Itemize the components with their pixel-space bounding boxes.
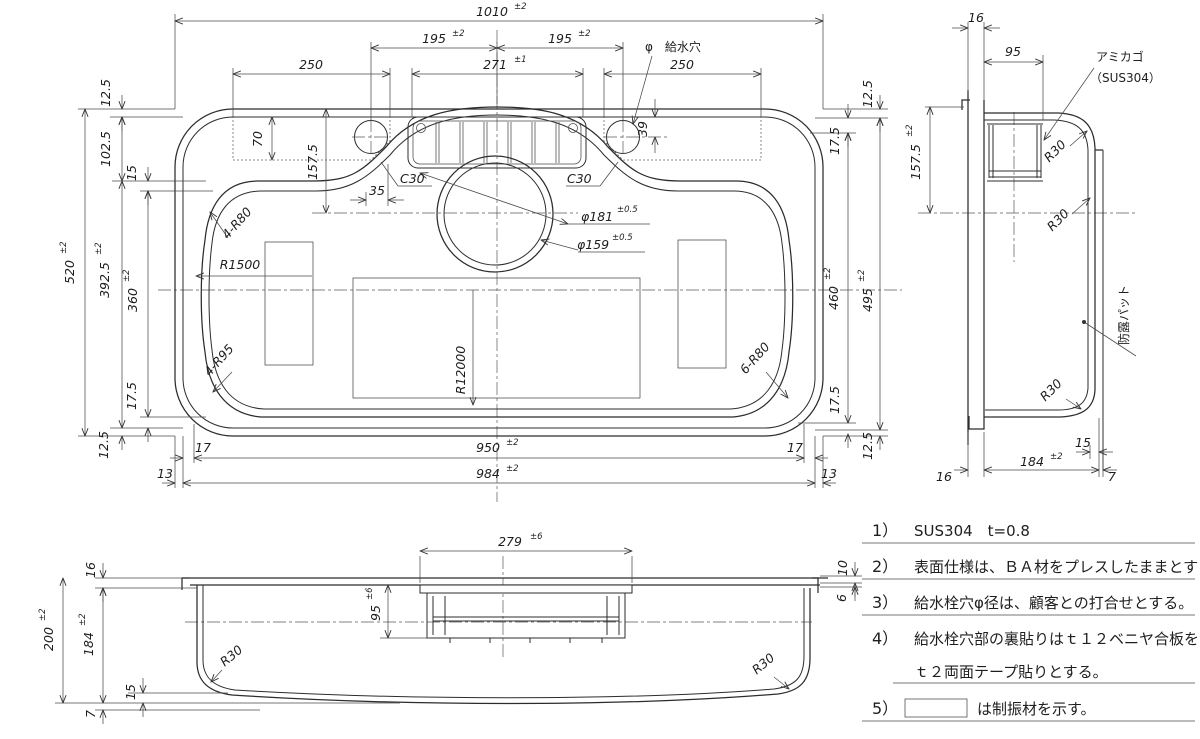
dim-drain-outer-tol: ±0.5: [617, 205, 638, 215]
dim-184-front: 184 ±2: [78, 613, 96, 655]
dim-950-tol: ±2: [506, 438, 519, 448]
damping-pad-right: [678, 240, 726, 368]
dim-15-side: 15: [1075, 435, 1091, 450]
front-basket: [420, 585, 632, 643]
note-1-text: SUS304 t=0.8: [914, 522, 1030, 540]
front-leaders: [211, 670, 789, 689]
svg-text:200: 200: [41, 627, 56, 651]
plan-view: 1010 ±2 195 ±2 195 ±2 φ 給水穴 250 271 ±1 2…: [59, 2, 902, 502]
dim-271: 271: [483, 57, 507, 72]
side-basket: [987, 124, 1043, 181]
dim-17-right: 17: [787, 440, 803, 455]
dim-16-top-side: 16: [968, 10, 984, 25]
dim-17-5-bottom-right: 17.5: [827, 386, 842, 414]
dim-7-front: 7: [83, 710, 98, 718]
svg-text:184: 184: [81, 632, 96, 656]
dim-271-tol: ±1: [514, 55, 527, 65]
svg-text:±2: ±2: [857, 269, 867, 282]
dim-15-front: 15: [123, 684, 138, 700]
engineering-drawing-sink: 1010 ±2 195 ±2 195 ±2 φ 給水穴 250 271 ±1 2…: [0, 0, 1200, 739]
dim-195-right: 195: [548, 31, 572, 46]
label-r1500: R1500: [220, 257, 261, 272]
svg-text:95: 95: [368, 605, 383, 621]
dim-195-left-tol: ±2: [452, 29, 465, 39]
note-4-number: 4）: [872, 629, 898, 648]
dim-984: 984: [476, 466, 500, 481]
label-r30-front-left: R30: [217, 642, 246, 669]
note-3-number: 3）: [872, 593, 898, 612]
drain-circle-inner: [444, 163, 546, 265]
label-c30-right: C30: [567, 171, 592, 186]
note-4-text-line2: ｔ２両面テープ貼りとする。: [914, 663, 1108, 681]
side-section-view: 16 95 アミカゴ （SUS304） 157.5 ±2 R30 R30 防露パ…: [905, 10, 1161, 484]
dim-overall-width-tol: ±2: [514, 2, 527, 12]
dim-12-5-top-left: 12.5: [98, 79, 113, 107]
dim-460: 460 ±2: [823, 267, 841, 309]
dim-7-side: 7: [1108, 469, 1116, 484]
svg-text:±2: ±2: [122, 269, 132, 282]
plan-leaders: [196, 56, 788, 405]
dim-184-side: 184: [1020, 454, 1044, 469]
dim-12-5-bottom-right: 12.5: [860, 432, 875, 460]
dim-95-side: 95: [1005, 44, 1021, 59]
dim-184-side-tol: ±2: [1050, 452, 1063, 462]
svg-text:±2: ±2: [905, 124, 915, 137]
svg-text:±2: ±2: [78, 613, 88, 626]
drain-circle-outer: [437, 156, 553, 272]
label-r30-bottom-side: R30: [1037, 376, 1065, 404]
front-profile: [182, 578, 828, 704]
dim-250-left: 250: [299, 57, 323, 72]
note-5-hatch-swatch: [905, 699, 967, 717]
label-basket-material: （SUS304）: [1090, 71, 1161, 85]
dim-157-5-plan: 157.5: [305, 144, 320, 180]
label-faucet-hole: φ 給水穴: [645, 39, 701, 54]
label-r30-front-right: R30: [749, 650, 778, 677]
note-3-text: 給水栓穴φ径は、顧客との打合せとする。: [914, 594, 1193, 612]
dim-70: 70: [250, 131, 265, 147]
svg-text:392.5: 392.5: [97, 262, 112, 298]
dim-279: 279: [498, 534, 522, 549]
dim-195-left: 195: [422, 31, 446, 46]
dim-17-5-top-right: 17.5: [827, 127, 842, 155]
side-dimension-lines: [930, 28, 1117, 470]
svg-text:±6: ±6: [365, 587, 375, 600]
dim-950: 950: [476, 440, 500, 455]
label-basket: アミカゴ: [1096, 49, 1144, 64]
dim-12-5-top-right: 12.5: [860, 80, 875, 108]
dim-drain-inner: φ159: [577, 237, 609, 252]
svg-text:495: 495: [860, 288, 875, 312]
dim-15-left: 15: [124, 165, 139, 181]
note-5-text: は制振材を示す。: [977, 700, 1096, 718]
dim-17-5-bottom-left: 17.5: [124, 382, 139, 410]
dim-984-tol: ±2: [506, 464, 519, 474]
dim-250-right: 250: [670, 57, 694, 72]
svg-text:±2: ±2: [38, 608, 48, 621]
dim-16-bottom-side: 16: [936, 469, 952, 484]
label-6-r80: 6-R80: [737, 339, 773, 377]
dim-16-front: 16: [83, 562, 98, 578]
front-extension-lines: [55, 556, 862, 710]
damping-pad-center: [353, 278, 640, 398]
side-leaders: [1044, 68, 1136, 409]
dim-520: 520 ±2: [59, 241, 77, 283]
label-4-r80: 4-R80: [219, 204, 255, 242]
dim-157-5-side: 157.5 ±2: [905, 124, 923, 179]
dim-279-tol: ±6: [530, 532, 543, 542]
dim-10-front: 10: [835, 560, 850, 576]
note-4-text-line1: 給水栓穴部の裏貼りはｔ１２ベニヤ合板を: [914, 630, 1199, 648]
dim-drain-inner-tol: ±0.5: [612, 233, 633, 243]
label-r12000: R12000: [453, 346, 468, 394]
svg-text:460: 460: [826, 286, 841, 310]
dim-360: 360 ±2: [122, 269, 140, 311]
dim-overall-width: 1010: [476, 4, 508, 19]
damping-strip-right: [604, 117, 761, 160]
note-5-number: 5）: [872, 699, 898, 718]
dim-102-5: 102.5: [98, 131, 113, 167]
notes-block: 1） SUS304 t=0.8 2） 表面仕様は、ＢＡ材をプレスしたままとする。…: [862, 521, 1200, 721]
dim-13-right: 13: [821, 466, 837, 481]
svg-text:157.5: 157.5: [908, 144, 923, 180]
dim-6-front: 6: [834, 594, 849, 602]
label-r30-mid: R30: [1044, 206, 1072, 234]
side-profile: [962, 90, 1103, 470]
svg-text:360: 360: [125, 288, 140, 312]
dim-35: 35: [369, 183, 385, 198]
dim-39: 39: [635, 121, 650, 137]
dim-drain-outer: φ181: [581, 209, 613, 224]
label-r30-top: R30: [1041, 137, 1069, 165]
dim-200: 200 ±2: [38, 608, 56, 650]
damping-pad-left: [265, 242, 313, 365]
label-c30-left: C30: [400, 171, 425, 186]
note-2-number: 2）: [872, 557, 898, 576]
front-section-view: 279 ±6 16 200 ±2 184 ±2 95 ±6 R30 R30 15…: [38, 532, 862, 724]
grille-slats: [436, 122, 559, 163]
note-1-number: 1）: [872, 521, 898, 540]
dim-95-front: 95 ±6: [365, 587, 383, 621]
dim-195-right-tol: ±2: [578, 29, 591, 39]
dim-17-left: 17: [195, 440, 211, 455]
drawing-svg: 1010 ±2 195 ±2 195 ±2 φ 給水穴 250 271 ±1 2…: [0, 0, 1200, 739]
svg-text:±2: ±2: [94, 242, 104, 255]
svg-text:520: 520: [62, 260, 77, 284]
dim-13-left: 13: [157, 466, 173, 481]
dim-495: 495 ±2: [857, 269, 875, 311]
dim-392-5: 392.5 ±2: [94, 242, 112, 297]
label-condensation-pad: 防露パット: [1116, 285, 1131, 345]
faucet-holes: [352, 119, 668, 155]
note-2-text: 表面仕様は、ＢＡ材をプレスしたままとする。: [914, 558, 1200, 576]
dim-12-5-bottom-left: 12.5: [96, 431, 111, 459]
svg-text:±2: ±2: [823, 267, 833, 280]
svg-text:±2: ±2: [59, 241, 69, 254]
